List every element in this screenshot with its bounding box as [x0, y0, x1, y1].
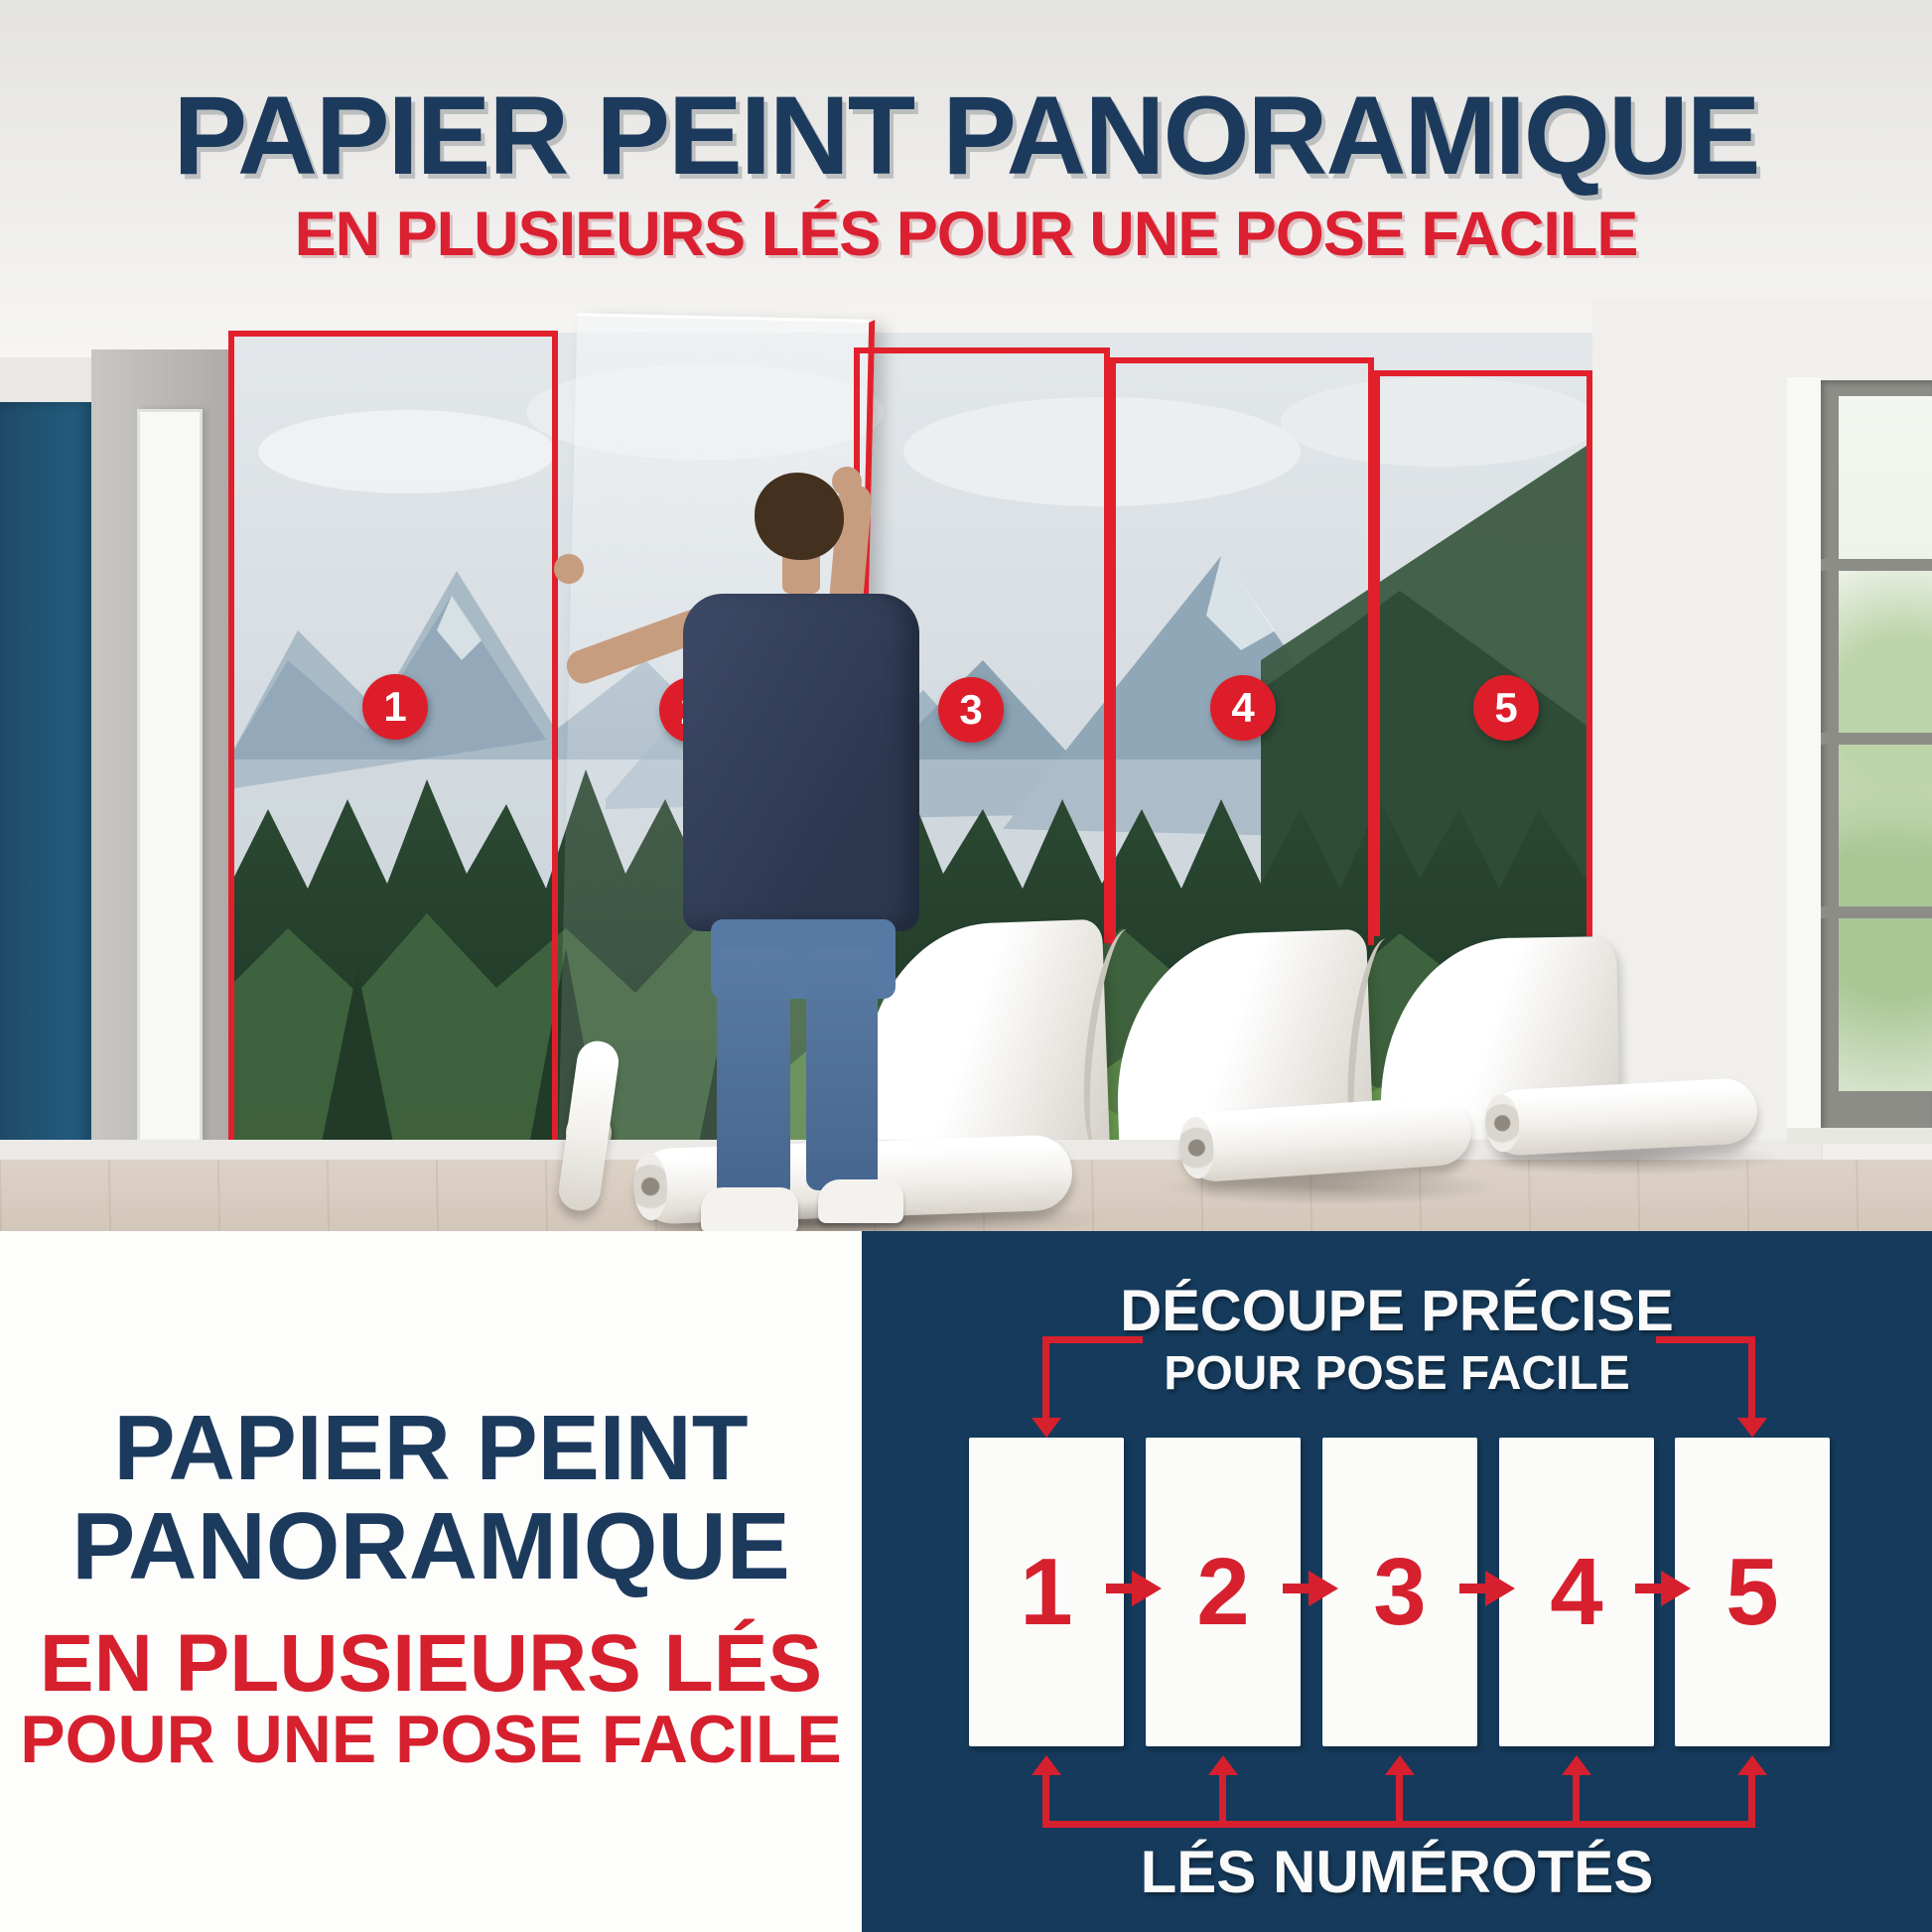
window-sill	[1787, 1128, 1932, 1144]
window-jamb	[1787, 377, 1821, 1137]
bracket-stub	[1396, 1775, 1403, 1825]
window-mullion	[1821, 733, 1932, 745]
up-arrow-icon	[1032, 1755, 1061, 1775]
up-arrow-icon	[1385, 1755, 1415, 1775]
bracket-stub	[1573, 1775, 1580, 1825]
up-arrow-icon	[1562, 1755, 1591, 1775]
right-elbow-arrow	[1656, 1336, 1755, 1343]
diagram-title-line2: POUR POSE FACILE	[862, 1350, 1932, 1398]
strip-number-badge-3: 3	[938, 677, 1004, 743]
bottom-left-text-panel: PAPIER PEINT PANORAMIQUE EN PLUSIEURS LÉ…	[0, 1231, 862, 1932]
up-arrow-icon	[1737, 1755, 1767, 1775]
right-elbow-arrow	[1748, 1336, 1755, 1418]
panel-title-line1: PAPIER PEINT	[0, 1402, 862, 1494]
wallpaper-strip-1-outline	[228, 331, 558, 1155]
diagram-strip-number-4: 4	[1499, 1438, 1654, 1746]
room-photo: 1 2 3 4 5 PAPIER PEINT PANORAMIQUE EN PL…	[0, 0, 1932, 1231]
flow-arrow-icon	[1283, 1571, 1340, 1606]
infographic: 1 2 3 4 5 PAPIER PEINT PANORAMIQUE EN PL…	[0, 0, 1932, 1932]
bracket-stub	[1219, 1775, 1226, 1825]
main-title: PAPIER PEINT PANORAMIQUE	[0, 71, 1932, 200]
left-elbow-arrow	[1042, 1336, 1143, 1343]
up-arrow-icon	[1208, 1755, 1238, 1775]
wallpaper-strip-5-outline	[1374, 370, 1592, 936]
window-mullion	[1821, 559, 1932, 571]
panel-subtitle-line1: EN PLUSIEURS LÉS	[0, 1623, 862, 1705]
window	[1821, 380, 1932, 1135]
main-subtitle: EN PLUSIEURS LÉS POUR UNE POSE FACILE	[0, 199, 1932, 270]
diagram-caption: LÉS NUMÉROTÉS	[862, 1843, 1932, 1902]
diagram-strip-number-3: 3	[1322, 1438, 1477, 1746]
man-leg	[717, 948, 790, 1198]
flow-arrow-icon	[1635, 1571, 1693, 1606]
man-tshirt	[683, 594, 919, 931]
strip-number-badge-5: 5	[1473, 675, 1539, 741]
man-head	[755, 473, 844, 560]
navy-accent-wall	[0, 402, 91, 1152]
window-mullion	[1821, 906, 1932, 918]
man-leg	[806, 948, 878, 1190]
bracket-stub	[1748, 1775, 1755, 1825]
flow-arrow-icon	[1106, 1571, 1164, 1606]
diagram-strip-number-2: 2	[1146, 1438, 1301, 1746]
down-arrow-icon	[1737, 1418, 1767, 1438]
numbered-strips-diagram: DÉCOUPE PRÉCISE POUR POSE FACILE 1 2 3 4…	[862, 1231, 1932, 1932]
panel-title-line2: PANORAMIQUE	[0, 1499, 862, 1594]
door	[137, 409, 203, 1181]
left-elbow-arrow	[1042, 1336, 1049, 1418]
man-shoe	[701, 1187, 798, 1231]
flow-arrow-icon	[1459, 1571, 1517, 1606]
diagram-strip-number-5: 5	[1675, 1438, 1830, 1746]
man-shoe	[818, 1179, 903, 1223]
diagram-strip-number-1: 1	[969, 1438, 1124, 1746]
diagram-title-line1: DÉCOUPE PRÉCISE	[862, 1283, 1932, 1340]
panel-subtitle-line2: POUR UNE POSE FACILE	[0, 1706, 862, 1773]
wallpaper-strip-4-outline	[1110, 357, 1374, 945]
strip-number-badge-4: 4	[1210, 675, 1276, 741]
down-arrow-icon	[1032, 1418, 1061, 1438]
man-left-hand	[554, 554, 584, 584]
man-right-hand	[832, 467, 862, 496]
bracket-stub	[1042, 1775, 1049, 1825]
strip-number-badge-1: 1	[362, 674, 428, 740]
